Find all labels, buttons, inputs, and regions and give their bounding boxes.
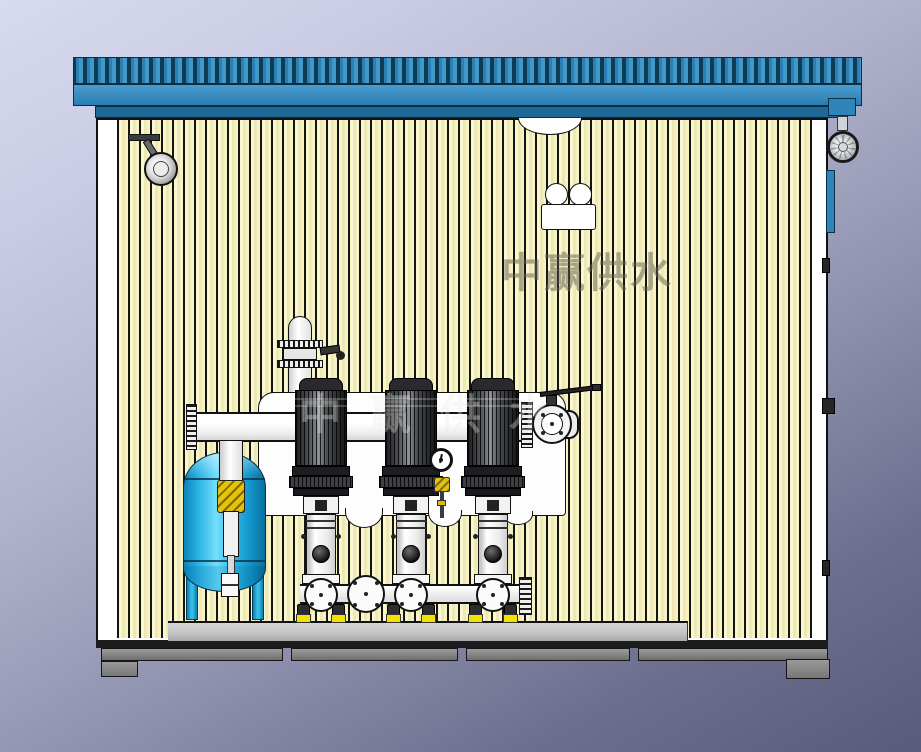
roof-fascia (73, 84, 862, 106)
fan-hub (838, 142, 848, 152)
flange-bolts (319, 593, 323, 597)
motor-flange (383, 488, 439, 496)
suction-elbow-flange (304, 578, 338, 612)
tank-riser-tube (223, 511, 239, 557)
side-panel (826, 170, 835, 233)
inlet-valve-body (283, 348, 317, 360)
enclosure-sill (96, 640, 828, 648)
inlet-valve-knob (336, 351, 345, 360)
tank-riser-pipe (219, 441, 243, 482)
motor-band (385, 398, 437, 400)
tank-riser-stem (227, 555, 235, 575)
column-valve-ball (484, 545, 502, 563)
exterior-fan-stem (837, 116, 848, 131)
vibration-pad (468, 614, 483, 623)
suction-junction-flange (347, 575, 385, 613)
spotlight-lens (153, 161, 169, 177)
column-valve-ball (402, 545, 420, 563)
valve-handle-knob (592, 384, 601, 391)
column-clamp (478, 527, 508, 529)
exterior-mount-box (828, 98, 856, 116)
vibration-pad (296, 614, 311, 623)
coupling-window (405, 500, 417, 511)
pressure-gauge (429, 448, 453, 472)
outlet-butterfly-valve (532, 404, 572, 444)
base-foot-left (101, 661, 138, 677)
suction-elbow-flange (476, 578, 510, 612)
door-handle (822, 398, 835, 414)
motor-band (295, 405, 347, 407)
base-frame-beam (466, 648, 630, 661)
column-clamp (306, 527, 336, 529)
pump-unit-1 (295, 378, 347, 638)
emergency-light-lamp (545, 183, 568, 206)
column-clamp (478, 520, 508, 522)
motor-flange (293, 488, 349, 496)
flange-bolts (409, 593, 413, 597)
valve-stem (546, 395, 557, 406)
column-port (508, 534, 513, 539)
column-clamp (306, 520, 336, 522)
column-port (426, 534, 431, 539)
suction-elbow-flange (394, 578, 428, 612)
inlet-valve-flange (277, 360, 323, 368)
flange-bolts (364, 592, 368, 596)
column-valve-ball (312, 545, 330, 563)
pump-unit-3 (467, 378, 519, 638)
motor-band (467, 405, 519, 407)
motor-band (385, 405, 437, 407)
motor-flange (289, 476, 353, 488)
column-port (391, 534, 396, 539)
roof-lower-band (95, 106, 839, 118)
door-hinge (822, 258, 830, 273)
ceiling-spotlight (144, 152, 178, 186)
exhaust-fan-icon (827, 131, 859, 163)
brass-union-valve (217, 480, 245, 513)
column-clamp (396, 520, 426, 522)
motor-flange (465, 488, 521, 496)
gauge-tap (437, 500, 446, 506)
base-foot-right (786, 659, 830, 679)
coupling-window (487, 500, 499, 511)
motor-body (295, 390, 347, 466)
flange-bolts (491, 593, 495, 597)
tank-inlet-fitting (221, 573, 239, 597)
gauge-hub (439, 458, 443, 462)
door-hinge (822, 560, 830, 576)
cad-render-canvas: 中赢供水 中赢供水 (0, 0, 921, 752)
motor-band (467, 398, 519, 400)
emergency-light-lamp (569, 183, 592, 206)
motor-band (295, 398, 347, 400)
suction-blind-flange (519, 577, 532, 615)
vibration-pad (331, 614, 346, 623)
vibration-pad (503, 614, 518, 623)
base-frame-beam (101, 648, 283, 661)
vibration-pad (386, 614, 401, 623)
column-port (301, 534, 306, 539)
emergency-light-body (541, 204, 596, 230)
roof-corrugation (73, 57, 862, 84)
manifold-end-flange (186, 404, 197, 450)
inlet-valve-flange (277, 340, 323, 348)
motor-flange (464, 466, 522, 476)
gauge-cock-valve (434, 477, 450, 492)
coupling-window (315, 500, 327, 511)
pump-unit-2 (385, 378, 437, 638)
motor-flange (461, 476, 525, 488)
column-port (336, 534, 341, 539)
column-clamp (396, 527, 426, 529)
valve-bolts (550, 422, 554, 426)
vibration-pad (421, 614, 436, 623)
column-port (473, 534, 478, 539)
motor-flange (292, 466, 350, 476)
base-frame-beam (291, 648, 458, 661)
motor-body (467, 390, 519, 466)
tank-weld-seam (184, 560, 265, 562)
